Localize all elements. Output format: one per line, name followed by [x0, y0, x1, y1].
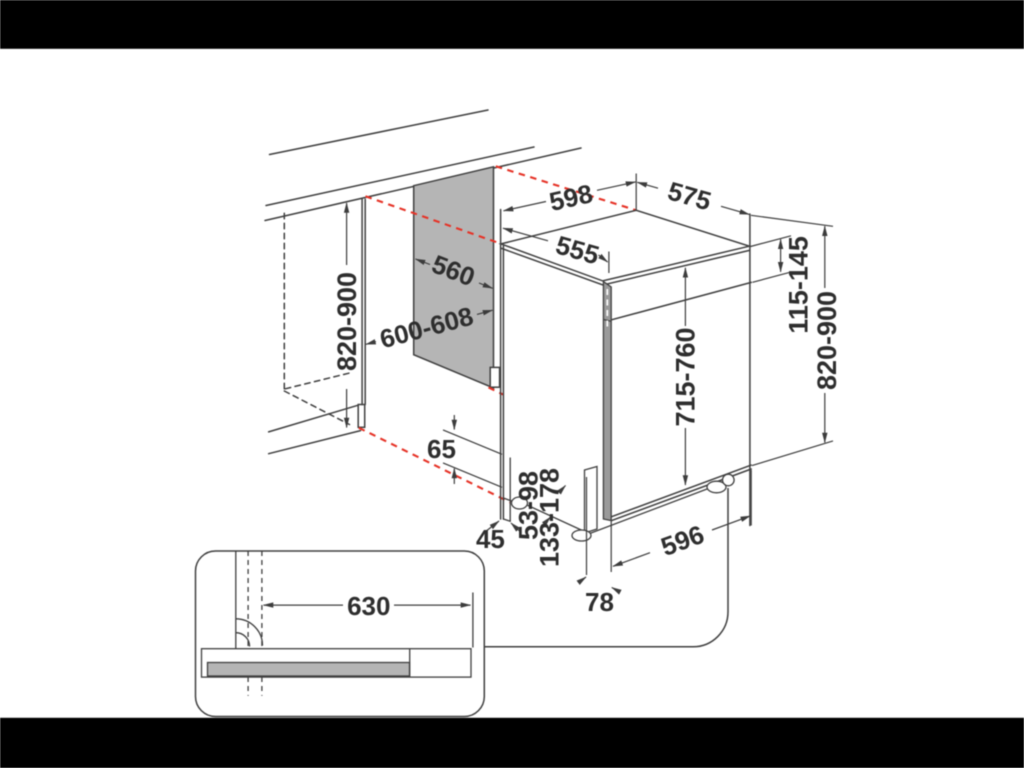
svg-text:820-900: 820-900 [332, 272, 362, 371]
svg-text:45: 45 [476, 524, 505, 554]
svg-text:133-178: 133-178 [535, 468, 565, 567]
svg-text:78: 78 [585, 587, 614, 617]
svg-text:630: 630 [347, 591, 390, 621]
svg-text:715-760: 715-760 [671, 327, 701, 426]
svg-text:820-900: 820-900 [812, 291, 842, 390]
svg-text:65: 65 [427, 434, 456, 464]
svg-text:115-145: 115-145 [784, 236, 814, 334]
